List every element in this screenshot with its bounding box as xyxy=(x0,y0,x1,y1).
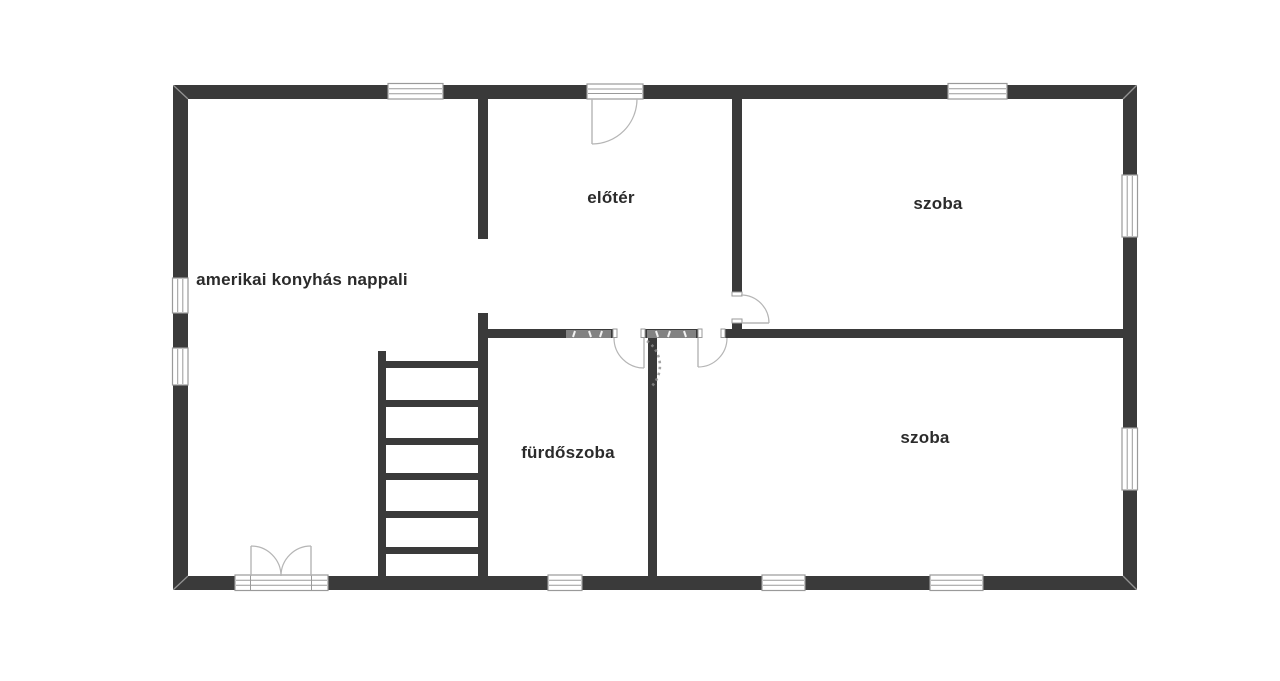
window-symbol xyxy=(762,575,805,591)
window-symbol xyxy=(388,84,443,100)
door-symbol xyxy=(732,292,769,323)
stairs-symbol xyxy=(378,351,480,576)
room-label-bathroom: fürdőszoba xyxy=(521,443,615,462)
wall-bathroom-room-divider xyxy=(648,338,657,576)
room-label-hallway: előtér xyxy=(587,188,635,207)
floor-plan-svg: amerikai konyhás nappali előtér szoba fü… xyxy=(0,0,1280,681)
wall-hallway-left-upper xyxy=(478,99,488,239)
stairs-step xyxy=(384,438,480,445)
stairs-step xyxy=(384,361,480,368)
stairs-step xyxy=(384,547,480,554)
window-symbol xyxy=(1122,175,1138,237)
room-label-room-top: szoba xyxy=(913,194,963,213)
stairs-step xyxy=(384,511,480,518)
door-symbol xyxy=(698,329,727,368)
window-symbol xyxy=(173,348,189,385)
room-label-living-kitchen: amerikai konyhás nappali xyxy=(196,270,408,289)
double-door-symbol xyxy=(235,546,328,591)
window-symbol xyxy=(930,575,983,591)
stairs-step xyxy=(384,400,480,407)
room-labels: amerikai konyhás nappali előtér szoba fü… xyxy=(196,188,963,462)
window-symbol xyxy=(1122,428,1138,490)
room-label-room-bottom: szoba xyxy=(900,428,950,447)
window-symbol xyxy=(948,84,1007,100)
window-symbol xyxy=(548,575,582,591)
window-symbol xyxy=(173,278,189,313)
stairs-left-rail xyxy=(378,351,386,576)
stairs-step xyxy=(384,473,480,480)
door-symbol xyxy=(587,84,643,144)
floor-plan: amerikai konyhás nappali előtér szoba fü… xyxy=(0,0,1280,681)
wall-hallway-room-divider xyxy=(732,99,742,293)
door-symbol xyxy=(613,329,645,369)
wall-middle-horizontal-right xyxy=(725,329,1123,338)
